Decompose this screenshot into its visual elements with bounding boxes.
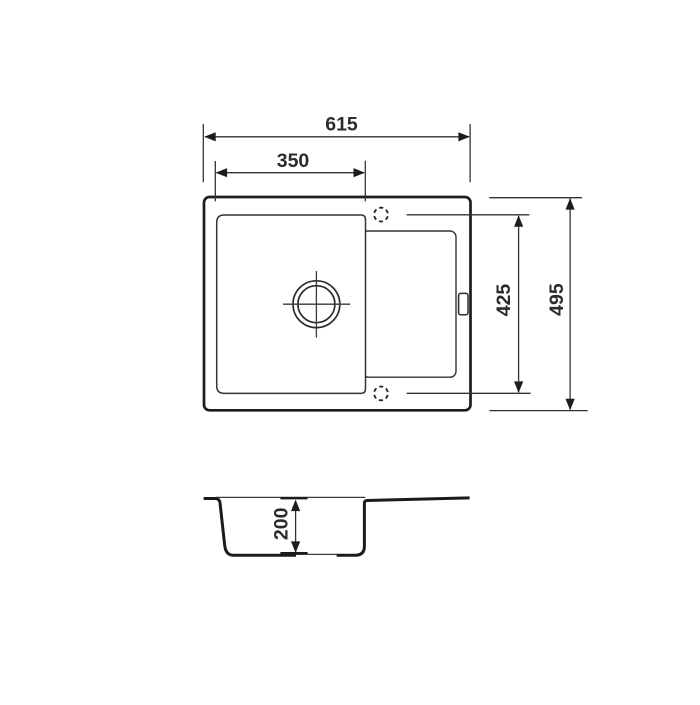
svg-text:425: 425 xyxy=(493,284,515,317)
svg-text:615: 615 xyxy=(325,114,358,136)
svg-text:495: 495 xyxy=(546,283,568,316)
svg-text:200: 200 xyxy=(270,507,292,540)
svg-text:350: 350 xyxy=(277,150,310,172)
